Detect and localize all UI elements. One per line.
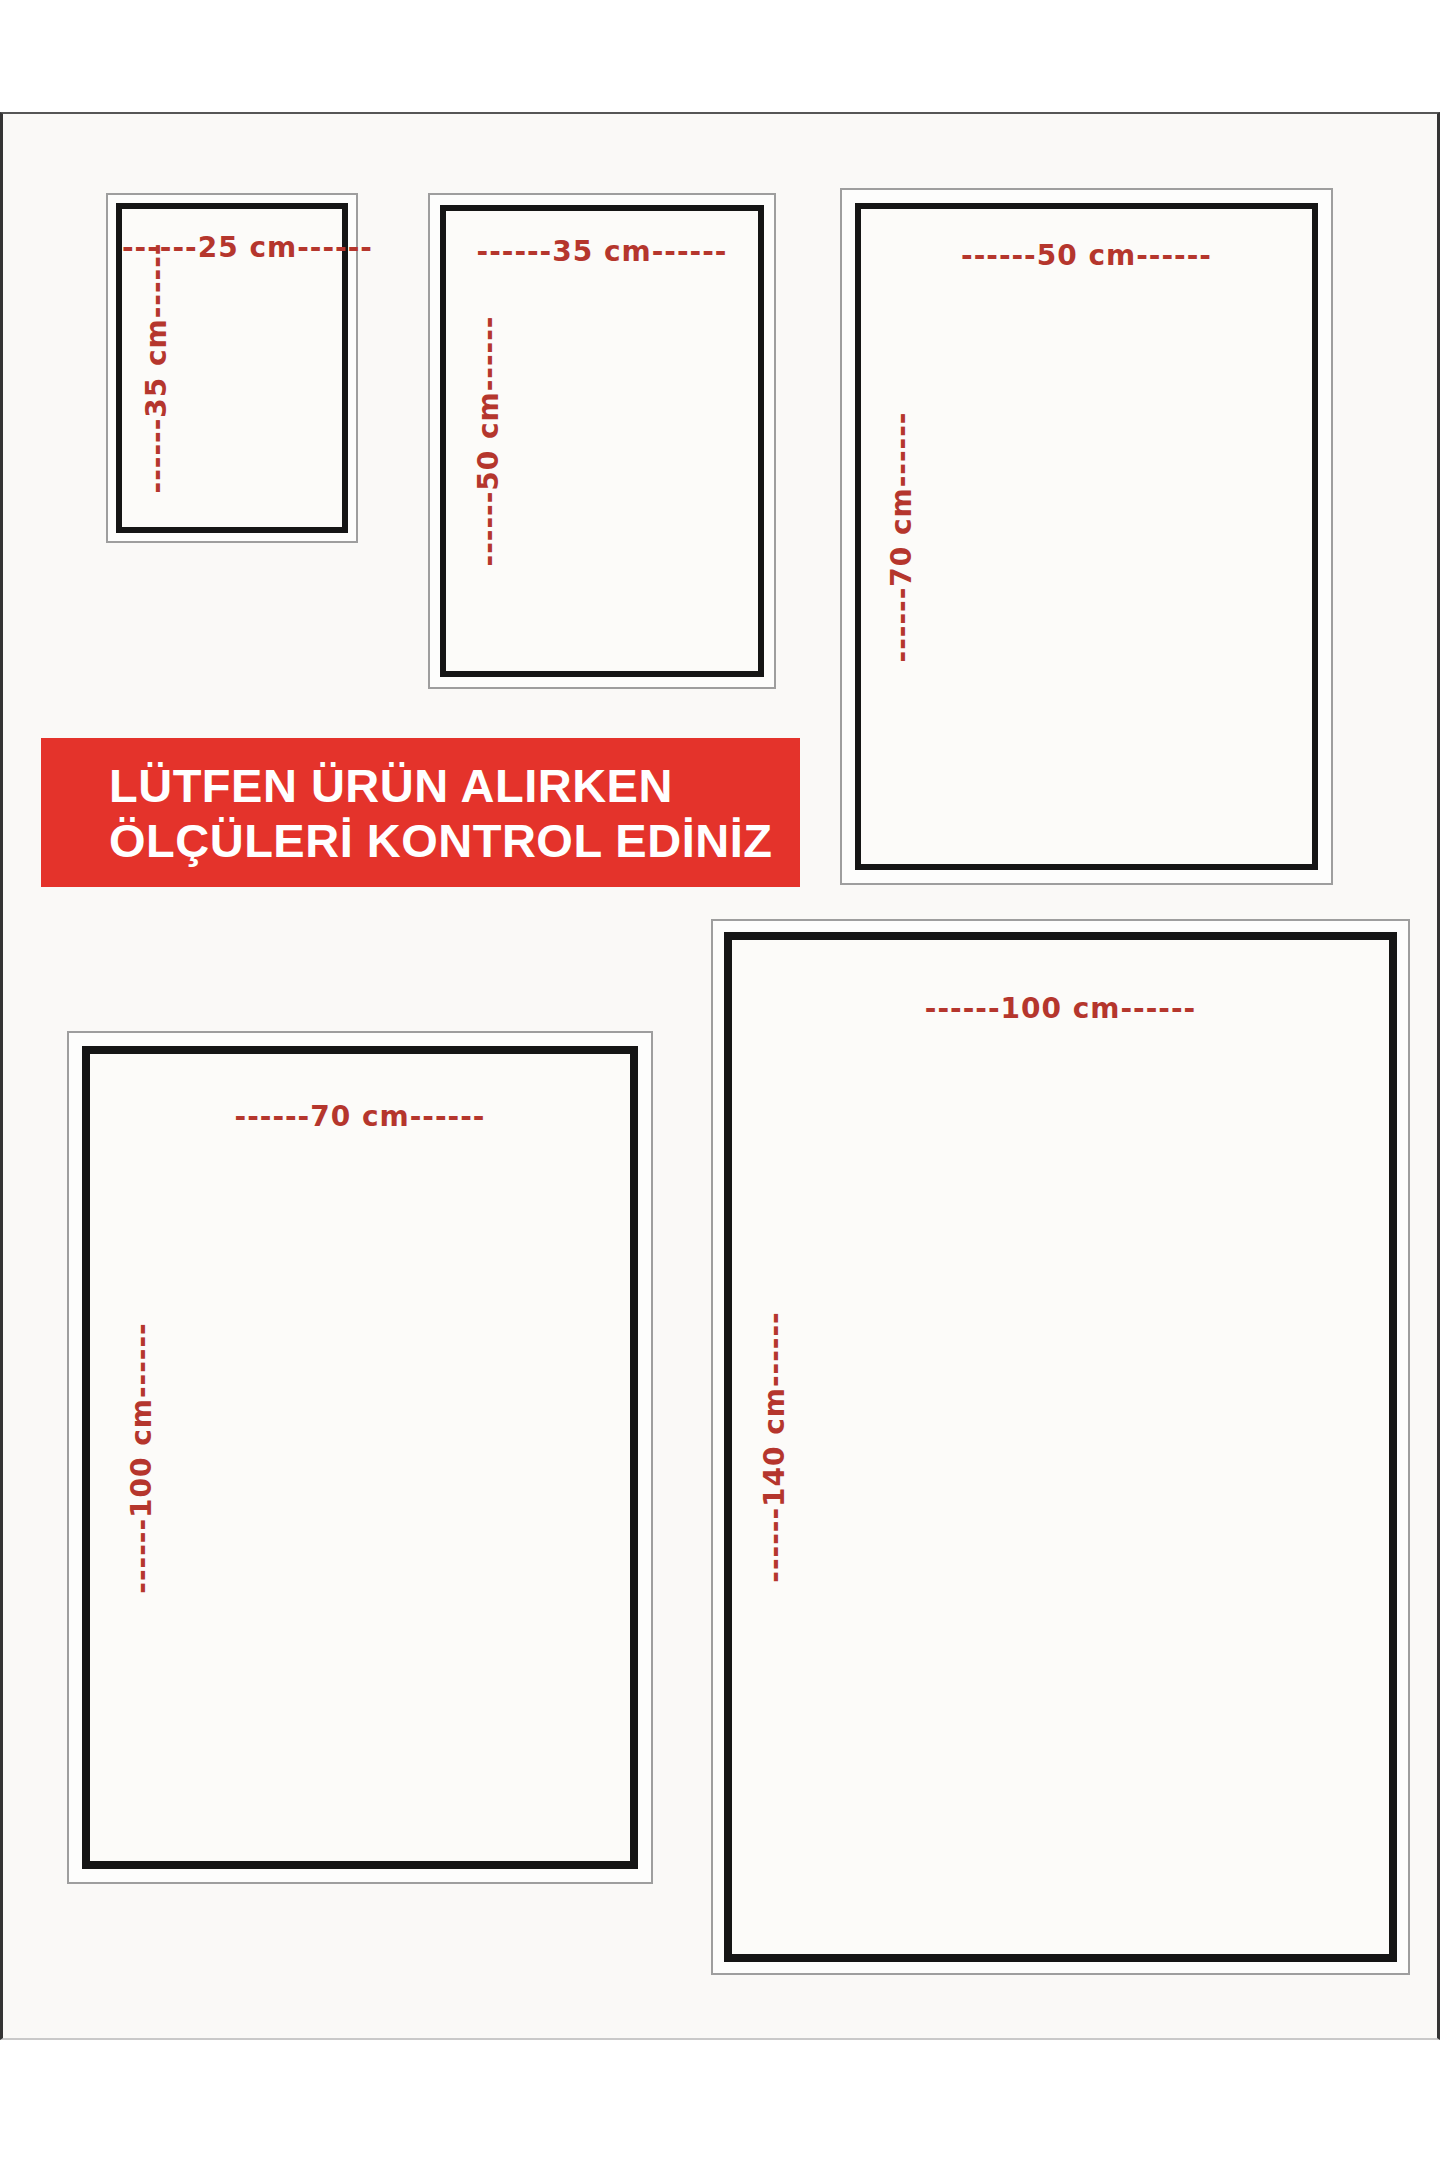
size-chart-image: ------25 cm------ ------35 cm------ ----… <box>0 112 1440 2040</box>
frame-100x140-inner-border: ------100 cm------ ------140 cm------ <box>724 932 1397 1962</box>
size-guide-page: ------25 cm------ ------35 cm------ ----… <box>0 0 1440 2160</box>
warning-banner: LÜTFEN ÜRÜN ALIRKEN ÖLÇÜLERİ KONTROL EDİ… <box>41 738 800 887</box>
frame-50x70: ------50 cm------ ------70 cm------ <box>840 188 1333 885</box>
frame-100x140-width-label: ------100 cm------ <box>732 992 1389 1025</box>
frame-70x100-inner-border: ------70 cm------ ------100 cm------ <box>82 1046 638 1869</box>
frame-50x70-height-label: ------70 cm------ <box>885 411 918 662</box>
frame-25x35-height-label: ------35 cm------ <box>140 243 173 494</box>
frame-25x35-inner-border: ------25 cm------ ------35 cm------ <box>116 203 348 533</box>
warning-banner-line1: LÜTFEN ÜRÜN ALIRKEN <box>109 758 800 813</box>
frame-35x50-inner-border: ------35 cm------ ------50 cm------ <box>440 205 764 677</box>
frame-35x50-width-label: ------35 cm------ <box>446 235 758 268</box>
frame-50x70-inner-border: ------50 cm------ ------70 cm------ <box>855 203 1318 870</box>
frame-70x100: ------70 cm------ ------100 cm------ <box>67 1031 653 1884</box>
frame-100x140-height-label: ------140 cm------ <box>758 1311 791 1582</box>
frame-100x140: ------100 cm------ ------140 cm------ <box>711 919 1410 1975</box>
frame-35x50-height-label: ------50 cm------ <box>472 316 505 567</box>
frame-35x50: ------35 cm------ ------50 cm------ <box>428 193 776 689</box>
warning-banner-line2: ÖLÇÜLERİ KONTROL EDİNİZ <box>109 813 800 868</box>
frame-70x100-width-label: ------70 cm------ <box>90 1100 630 1133</box>
frame-50x70-width-label: ------50 cm------ <box>861 239 1312 272</box>
frame-25x35: ------25 cm------ ------35 cm------ <box>106 193 358 543</box>
frame-70x100-height-label: ------100 cm------ <box>125 1322 158 1593</box>
